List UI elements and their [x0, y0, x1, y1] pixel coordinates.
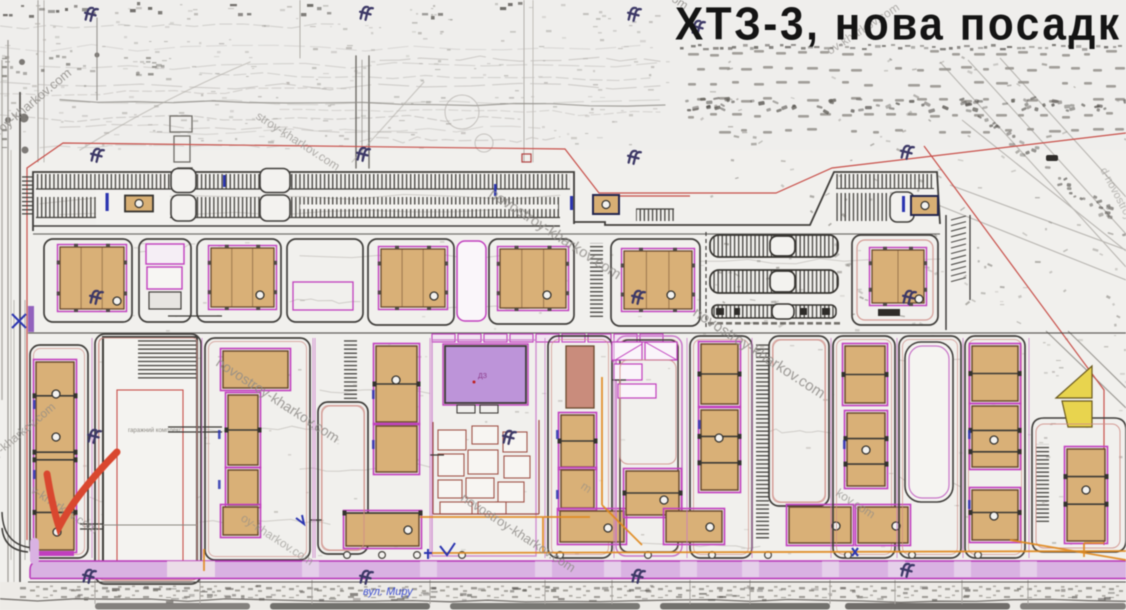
svg-text:ХТЗ-3, нова посадк: ХТЗ-3, нова посадк: [675, 0, 1122, 50]
svg-text:вул. Миру: вул. Миру: [363, 586, 414, 598]
svg-text:гаражний комплекс: гаражний комплекс: [128, 427, 182, 434]
svg-text:ДЗ: ДЗ: [478, 373, 487, 380]
